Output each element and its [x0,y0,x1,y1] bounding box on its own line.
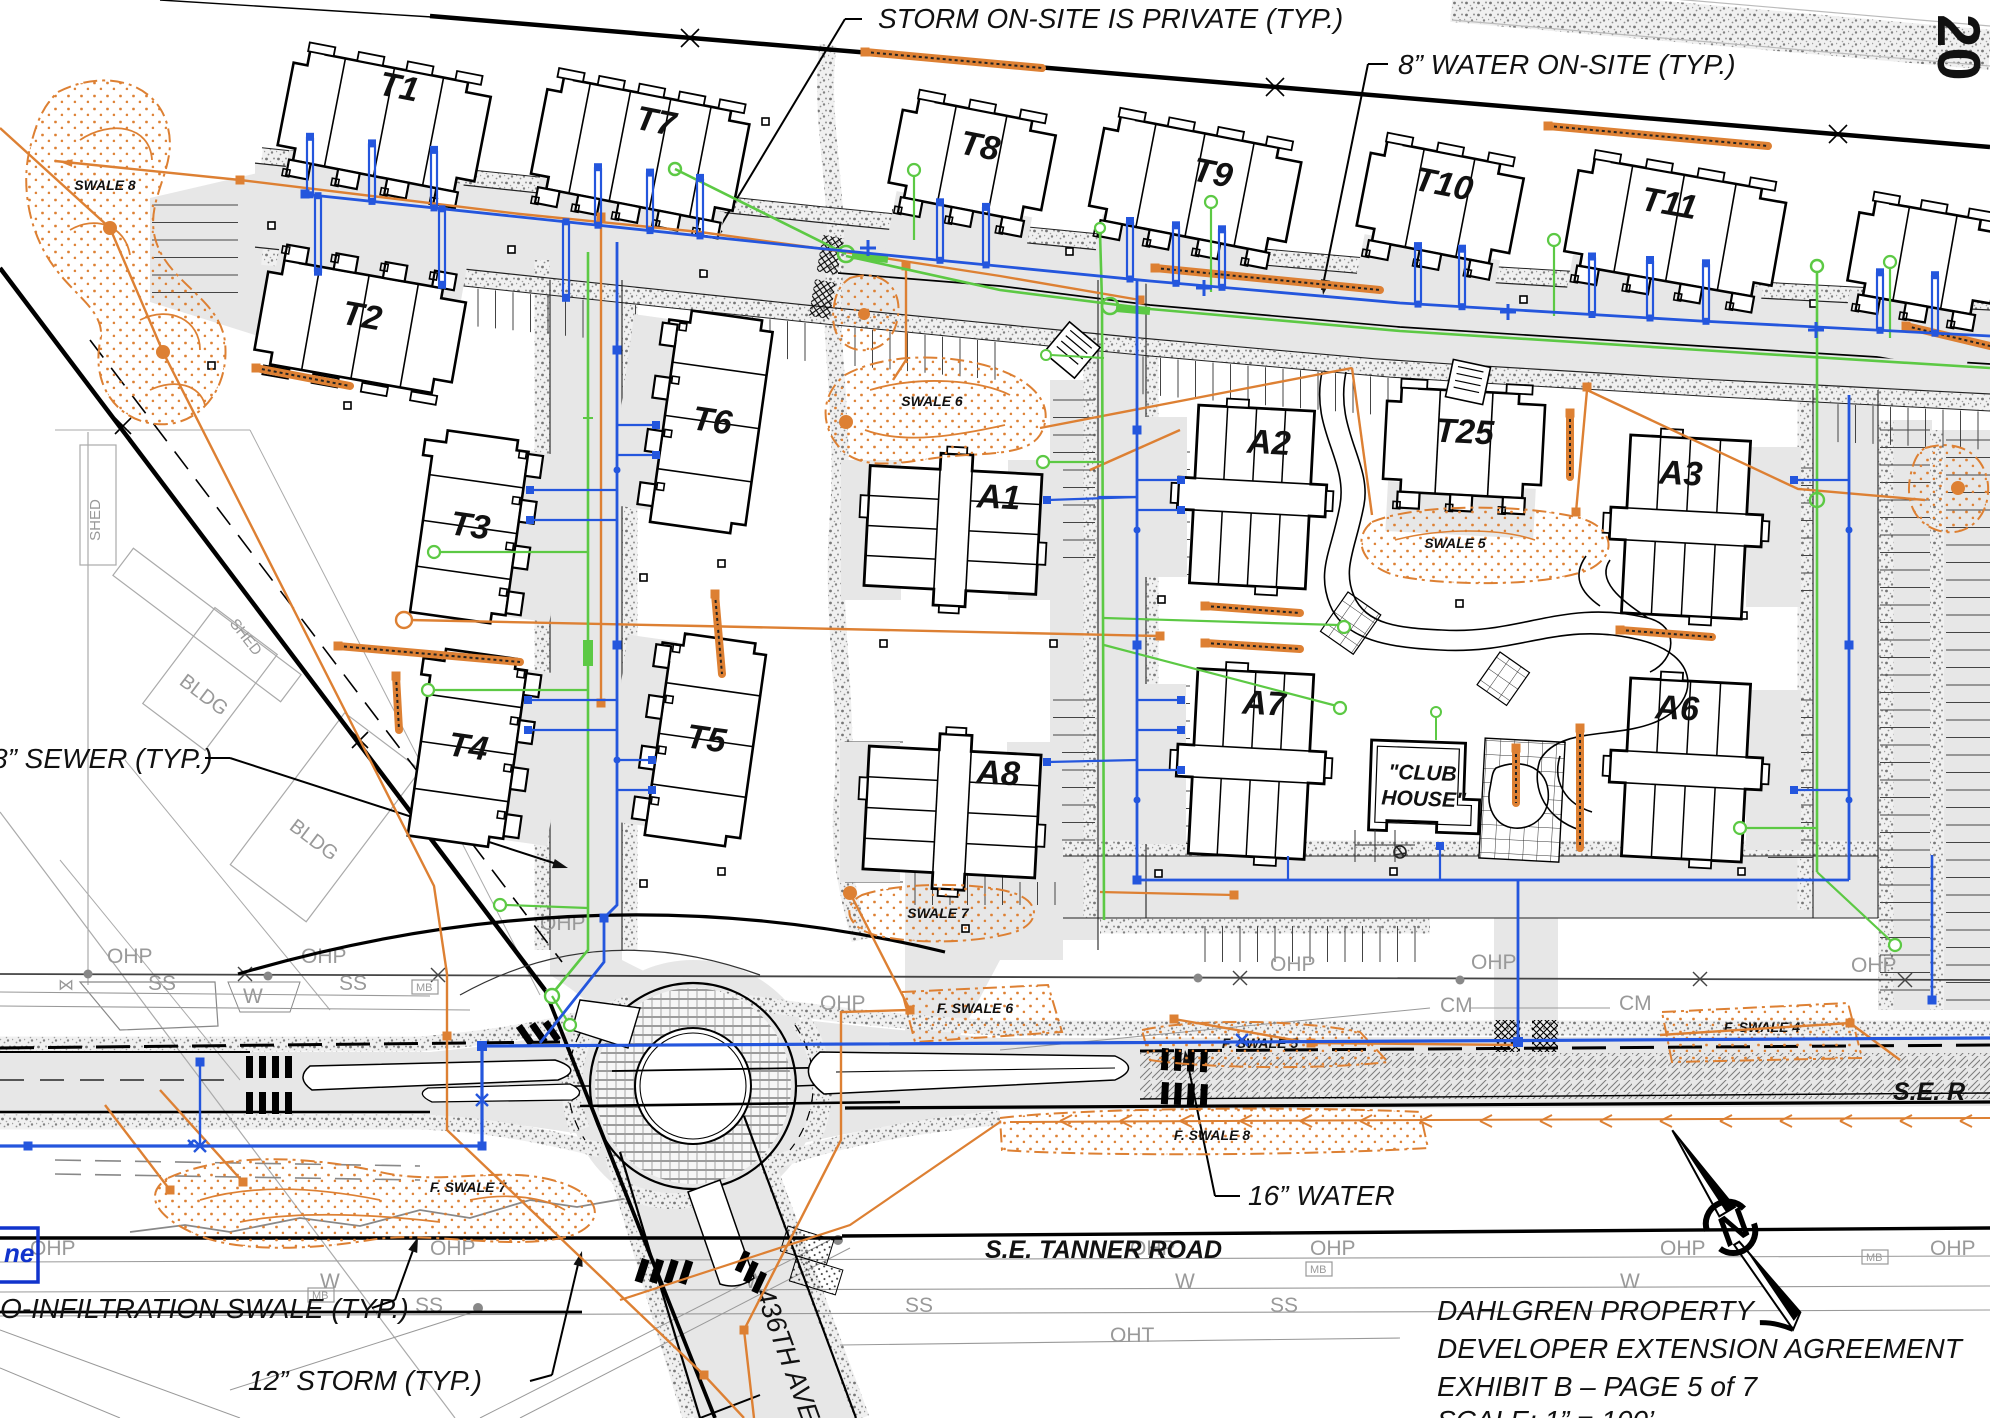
svg-text:OHT: OHT [1110,1324,1155,1347]
svg-text:SS: SS [339,972,367,995]
svg-text:MB: MB [1866,1252,1883,1264]
svg-text:OHP: OHP [1660,1237,1706,1260]
svg-text:T9: T9 [1189,151,1235,196]
svg-text:20: 20 [1925,14,1990,81]
svg-text:⋈: ⋈ [58,977,74,994]
svg-text:SS: SS [905,1294,933,1317]
svg-text:F. SWALE 7: F. SWALE 7 [430,1179,507,1195]
svg-text:O-INFILTRATION SWALE (TYP.): O-INFILTRATION SWALE (TYP.) [0,1293,409,1324]
svg-text:SCALE: 1” = 100’: SCALE: 1” = 100’ [1437,1405,1655,1418]
svg-text:A7: A7 [1240,683,1288,723]
svg-text:F. SWALE 6: F. SWALE 6 [937,1000,1013,1016]
svg-text:8” WATER ON-SITE (TYP.): 8” WATER ON-SITE (TYP.) [1398,49,1736,80]
svg-text:MB: MB [1310,1264,1327,1276]
svg-text:SS: SS [415,1294,443,1317]
svg-text:OHP: OHP [1471,951,1517,974]
svg-text:OHP: OHP [107,945,153,968]
svg-text:W: W [1175,1270,1195,1293]
svg-text:DAHLGREN PROPERTY: DAHLGREN PROPERTY [1437,1295,1756,1326]
svg-text:W: W [243,985,263,1008]
svg-text:8” SEWER (TYP.): 8” SEWER (TYP.) [0,743,212,774]
svg-text:T3: T3 [448,504,493,547]
svg-text:A8: A8 [974,753,1020,793]
svg-text:T8: T8 [957,124,1003,169]
svg-text:A2: A2 [1245,423,1291,463]
svg-text:HOUSE": HOUSE" [1381,786,1467,812]
svg-text:SWALE 5: SWALE 5 [1424,535,1486,551]
svg-text:OHP: OHP [1310,1237,1356,1260]
svg-text:T5: T5 [684,717,730,760]
svg-text:SWALE 8: SWALE 8 [74,177,136,193]
svg-text:OHP: OHP [1930,1237,1976,1260]
svg-text:OHP: OHP [1270,953,1316,976]
svg-text:SHED: SHED [87,499,104,541]
svg-text:A1: A1 [975,477,1021,517]
svg-text:"CLUB: "CLUB [1388,761,1457,786]
svg-text:SS: SS [148,972,176,995]
svg-text:T1: T1 [376,65,422,110]
svg-text:S.E. TANNER ROAD: S.E. TANNER ROAD [985,1236,1222,1264]
svg-text:W: W [1620,1270,1640,1293]
svg-text:16” WATER: 16” WATER [1248,1180,1395,1211]
svg-text:CM: CM [1440,994,1473,1017]
svg-text:EXHIBIT B – PAGE 5 of 7: EXHIBIT B – PAGE 5 of 7 [1437,1371,1758,1402]
svg-text:OHP: OHP [430,1237,476,1260]
svg-text:STORM ON-SITE IS PRIVATE (TYP.: STORM ON-SITE IS PRIVATE (TYP.) [878,3,1343,34]
svg-text:CM: CM [1619,992,1652,1015]
svg-text:12” STORM (TYP.): 12” STORM (TYP.) [248,1365,482,1396]
svg-text:SS: SS [1270,1294,1298,1317]
svg-text:DEVELOPER EXTENSION AGREEMENT: DEVELOPER EXTENSION AGREEMENT [1437,1333,1964,1364]
svg-text:MB: MB [416,982,433,994]
svg-text:A3: A3 [1657,453,1703,493]
svg-text:ne: ne [4,1238,34,1268]
svg-text:T4: T4 [446,725,491,768]
svg-text:F. SWALE 8: F. SWALE 8 [1174,1127,1250,1143]
svg-text:T25: T25 [1434,412,1496,453]
svg-text:S.E. R: S.E. R [1893,1078,1965,1106]
svg-text:SWALE 6: SWALE 6 [901,393,963,409]
svg-text:SWALE 7: SWALE 7 [907,905,970,921]
svg-text:T6: T6 [690,399,736,442]
svg-text:T2: T2 [339,294,385,338]
svg-text:OHP: OHP [1851,954,1897,977]
